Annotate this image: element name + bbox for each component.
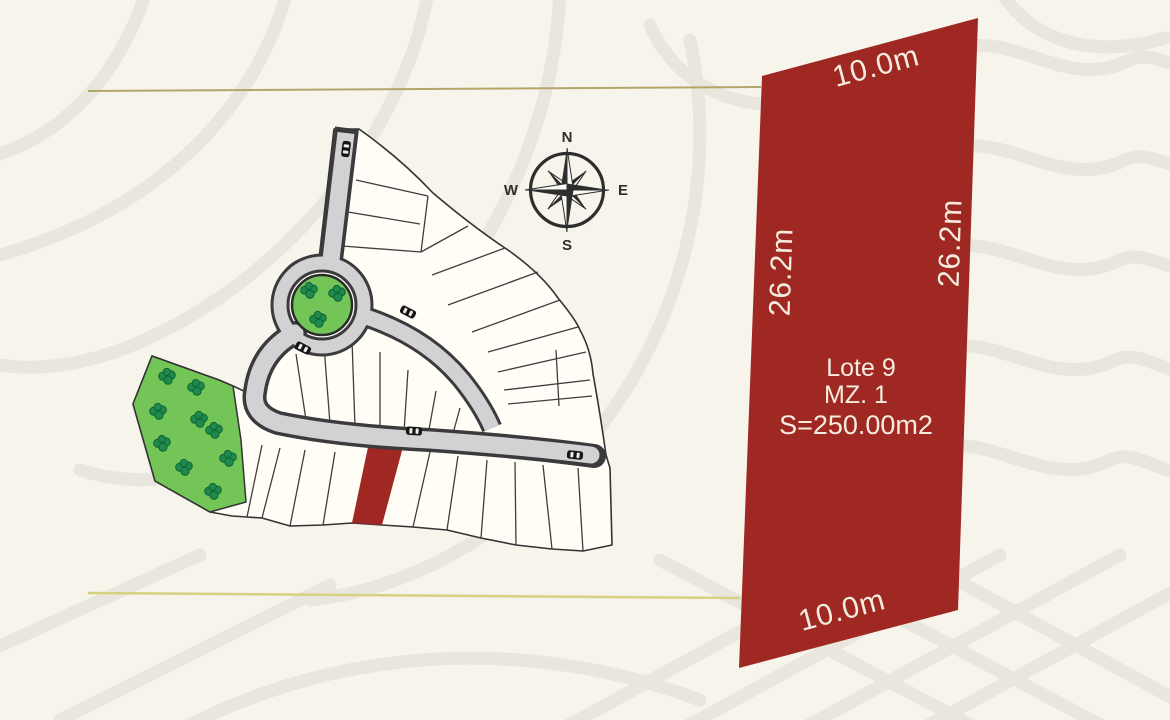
compass-south-label: S bbox=[562, 237, 572, 254]
horizontal-guide-line-top bbox=[88, 87, 761, 91]
lot-block: MZ. 1 bbox=[824, 381, 888, 409]
horizontal-guide-line-bottom bbox=[88, 593, 740, 598]
lot-dimension-right: 26.2m bbox=[932, 198, 968, 287]
lot-area: S=250.00m2 bbox=[779, 410, 933, 440]
featured-lot-shape bbox=[739, 18, 978, 668]
compass-east-label: E bbox=[618, 182, 628, 199]
featured-lot-card: 10.0m 26.2m 26.2m 10.0m Lote 9 MZ. 1 S=2… bbox=[739, 18, 978, 668]
car-icon bbox=[406, 426, 422, 435]
lot-dimension-left: 26.2m bbox=[763, 227, 799, 316]
compass-west-label: W bbox=[504, 182, 519, 199]
car-icon bbox=[567, 450, 584, 460]
lot-name: Lote 9 bbox=[826, 354, 896, 382]
park-area bbox=[133, 356, 246, 512]
page: N S E W 10.0m 26.2m 26.2m 10.0m Lote 9 M… bbox=[0, 0, 1170, 720]
lot-map-scene: N S E W 10.0m 26.2m 26.2m 10.0m Lote 9 M… bbox=[0, 0, 1170, 720]
compass-north-label: N bbox=[562, 129, 573, 146]
